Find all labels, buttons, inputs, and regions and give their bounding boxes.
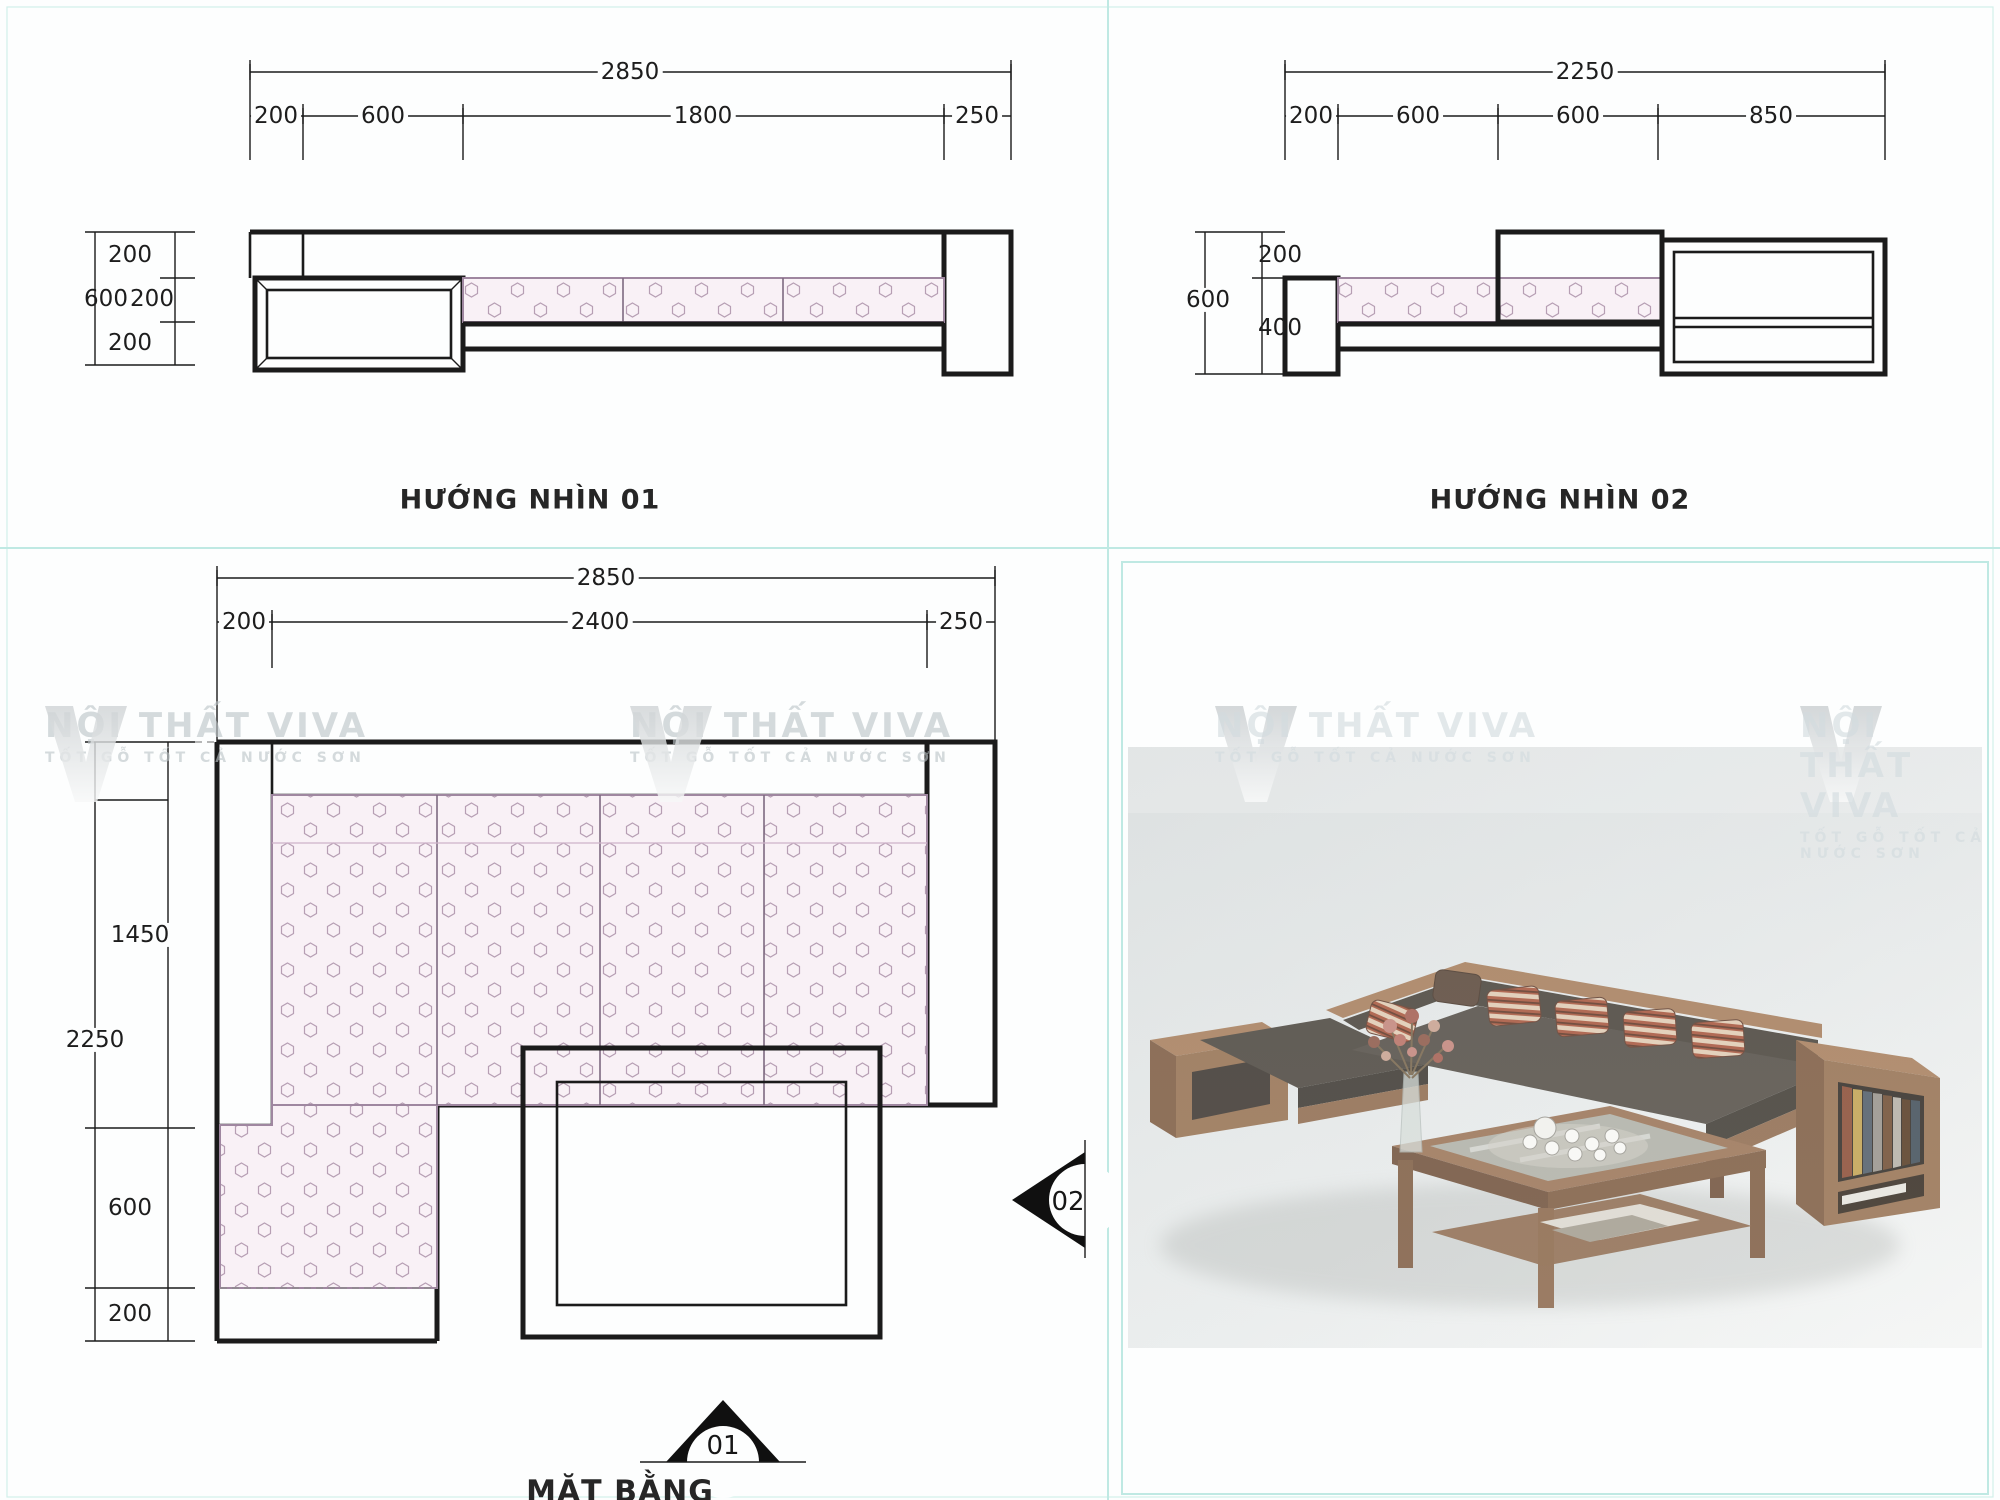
- v1-dim-seg-600: 600: [358, 104, 408, 128]
- v1-dim-left-mid: 200: [127, 287, 177, 311]
- v1-dim-left-outer: 600: [81, 287, 131, 311]
- v1-dim-seg-1800: 1800: [671, 104, 736, 128]
- plan-dim-left-200: 200: [105, 1302, 155, 1326]
- v2-dim-total: 2250: [1553, 60, 1618, 84]
- elevation-view-01: [85, 60, 1011, 374]
- plan-dim-total: 2850: [574, 566, 639, 590]
- v2-dim-seg-200: 200: [1286, 104, 1336, 128]
- v2-caption: HƯỚNG NHÌN 02: [1430, 485, 1691, 516]
- v2-dim-left-outer: 600: [1183, 288, 1233, 312]
- plan-view: [85, 566, 1121, 1498]
- product-photo: [1128, 747, 1982, 1348]
- v2-dim-left-bottom: 400: [1255, 316, 1305, 340]
- v1-caption: HƯỚNG NHÌN 01: [400, 485, 661, 516]
- v2-dim-seg-850: 850: [1746, 104, 1796, 128]
- plan-marker-01-label: 01: [706, 1431, 739, 1461]
- plan-dim-seg-2400: 2400: [568, 610, 633, 634]
- v2-dim-left-top: 200: [1255, 243, 1305, 267]
- plan-dim-left-1450: 1450: [108, 923, 173, 947]
- v2-dim-seg-600b: 600: [1553, 104, 1603, 128]
- v2-dim-seg-600a: 600: [1393, 104, 1443, 128]
- plan-dim-seg-250: 250: [936, 610, 986, 634]
- v1-dim-seg-200: 200: [251, 104, 301, 128]
- v1-dim-total: 2850: [598, 60, 663, 84]
- plan-dim-left-600: 600: [105, 1196, 155, 1220]
- v1-dim-seg-250: 250: [952, 104, 1002, 128]
- plan-marker-02-label: 02: [1051, 1187, 1084, 1217]
- v1-dim-left-bottom: 200: [105, 331, 155, 355]
- plan-caption: MẶT BẰNG: [526, 1475, 714, 1500]
- drawing-sheet: 2850 200 600 1800 250 200 600 200 200 HƯ…: [0, 0, 2000, 1500]
- plan-dim-left-2250: 2250: [63, 1028, 128, 1052]
- cad-linework: [0, 0, 2000, 1500]
- plan-dim-seg-200: 200: [219, 610, 269, 634]
- v1-dim-left-top: 200: [105, 243, 155, 267]
